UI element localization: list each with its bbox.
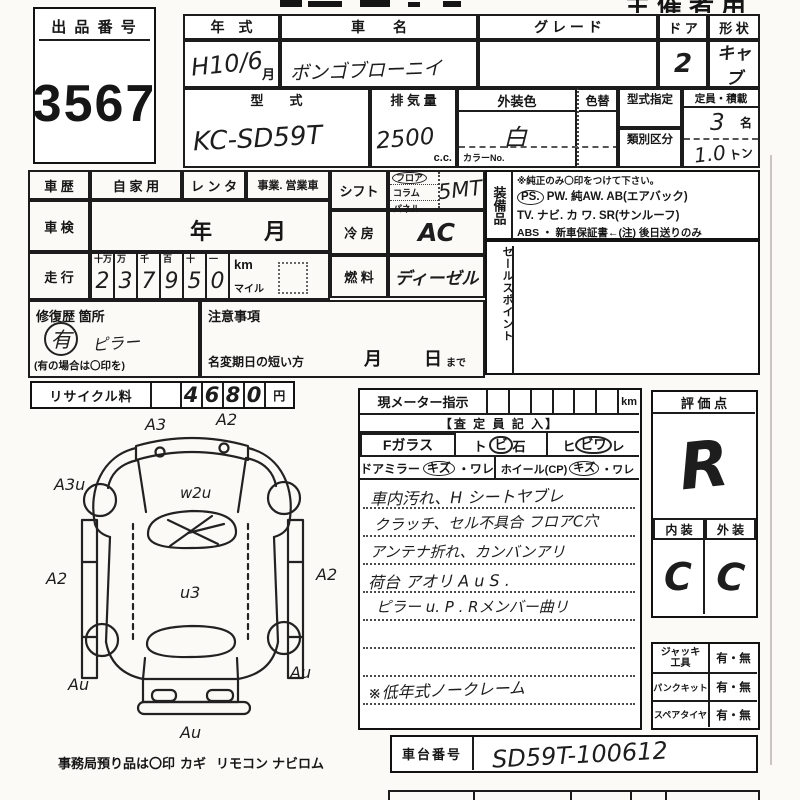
- meter-cell: [595, 390, 617, 413]
- mileage-digit-col: 万3: [115, 254, 138, 298]
- capacity-unit: 名: [740, 114, 752, 131]
- year-value: H10/6: [190, 46, 264, 81]
- cutoff-title-marks: [280, 0, 660, 9]
- footer-deposit-note: 事務局預り品は〇印: [58, 753, 175, 772]
- color-no-label: カラーNo.: [463, 151, 505, 164]
- carname-value: ボンゴブローニイ: [290, 53, 443, 85]
- shift-options: フロア コラム パネル: [390, 172, 440, 208]
- diagram-label-au-right: Au: [289, 663, 311, 682]
- capacity-value: 3: [710, 110, 725, 136]
- note-rule: [363, 535, 635, 537]
- evaluation-grade: R: [648, 409, 760, 523]
- model-label: 型 式: [185, 90, 368, 108]
- wheel-ware: ・ワレ: [601, 461, 634, 477]
- diagram-label-a2-left: A2: [45, 569, 67, 588]
- shaken-year: 年: [190, 214, 212, 246]
- crack-post: レ: [612, 436, 625, 455]
- caution-label: 注意事項: [208, 306, 260, 325]
- fglass-label: Fガラス: [360, 433, 456, 457]
- shift-cell: フロア コラム パネル 5MT: [388, 170, 485, 210]
- shift-floor-circled: フロア: [392, 172, 427, 184]
- shaken-month: 月: [264, 214, 286, 246]
- mark: [443, 1, 461, 7]
- divider: [630, 792, 632, 800]
- spare-tire-value: 有・無: [710, 702, 757, 727]
- mileage-digit-col: 十5: [184, 254, 207, 298]
- digit-head: 百: [161, 254, 182, 264]
- ps-circled: PS.: [517, 190, 544, 205]
- lot-number-value: 3567: [35, 45, 154, 162]
- history-rental: レ ン タ: [182, 170, 246, 200]
- stone-circled: ビ: [489, 436, 512, 455]
- crack-circled: ビワ: [575, 436, 611, 455]
- mile-label: マイル: [234, 280, 278, 295]
- note-rule: [363, 619, 635, 621]
- assessor-box: 現メーター指示 km 【査 定 員 記 入】 Fガラス トビ石 ヒビワレ ドアミ…: [358, 388, 642, 730]
- stone-post: 石: [513, 436, 529, 455]
- year-header: 年 式: [183, 14, 280, 40]
- stone-pre: ト: [473, 436, 489, 455]
- door-cell: 2: [658, 40, 708, 88]
- note-line: クラッチ、セル不具合 フロアC穴: [374, 510, 599, 535]
- irogae-cell: 色替: [577, 88, 618, 168]
- note-line: 車内汚れ、H シートヤブレ: [370, 482, 564, 509]
- equipment-line2: TV. ナビ. カ ワ. SR(サンルーフ): [517, 207, 756, 223]
- equipment-line1-rest: PW. 純AW. AB(エアバック): [547, 191, 688, 203]
- mirror-ware: ・ワレ: [458, 460, 494, 477]
- note-rule: [363, 703, 635, 705]
- recycle-unit: 円: [264, 383, 294, 407]
- caution-box: 注意事項 名変期日の短い方 月 日 まで: [200, 300, 485, 378]
- lot-number-box: 出 品 番 号 3567: [33, 7, 156, 164]
- recycle-blank-cell: [150, 383, 180, 407]
- puncture-kit-value: 有・無: [710, 674, 757, 702]
- mark: [308, 1, 342, 7]
- digit-value: 0: [207, 264, 228, 298]
- note-line: 荷台 アオリ A u S .: [368, 567, 510, 593]
- wheel-item: ホイール(CP) キズ・ワレ: [494, 457, 639, 480]
- note-rule: [363, 647, 635, 649]
- shape-header: 形 状: [708, 14, 760, 40]
- equipment-content: ※純正のみ〇印をつけて下さい。 PS. PW. 純AW. AB(エアバック) T…: [517, 173, 756, 238]
- class-division-label: 類別区分: [620, 130, 680, 148]
- vehicle-diagram: A3 A2 A3u A2 A2 w2u u3 Au Au Au: [40, 412, 360, 747]
- mileage-digit-col: 一0: [207, 254, 230, 298]
- displacement-value: 2500: [375, 123, 436, 154]
- displacement-label: 排 気 量: [372, 90, 455, 108]
- repair-label: 修復歴 箇所: [36, 306, 105, 325]
- diagram-label-a2-right: A2: [315, 565, 337, 584]
- recycle-digit: 0: [243, 383, 264, 407]
- auction-sheet: 主催者用 出 品 番 号 3567 年 式 車 名 グ レ ー ド ド ア 形 …: [0, 0, 800, 800]
- mark: [408, 2, 420, 7]
- recycle-label: リサイクル料: [32, 383, 150, 407]
- mark: [280, 0, 302, 7]
- mark: [360, 0, 390, 7]
- footer-navirom: ナビロム: [272, 753, 324, 772]
- capacity-cell: 定員・積載 3 名 1.0 トン: [682, 88, 760, 168]
- note-line: ※低年式ノークレーム: [368, 674, 526, 703]
- shape-cell: キャブ: [708, 40, 760, 88]
- puncture-kit-label: パンクキット: [653, 674, 710, 702]
- color-label: 外装色: [459, 90, 575, 112]
- rename-label: 名変期日の短い方: [208, 353, 304, 370]
- door-mirror-item: ドアミラー キズ・ワレ: [360, 457, 494, 480]
- bottom-partial-table: [388, 790, 760, 800]
- jack-tools-value: 有・無: [710, 644, 757, 674]
- evaluation-box: 評 価 点 R 内 装 外 装 C C: [651, 390, 758, 618]
- jack-tools-label: ジャッキ 工具: [653, 644, 710, 674]
- digit-head: 十: [184, 254, 205, 264]
- divider: [665, 792, 667, 800]
- footer-remote: リモコン: [216, 753, 268, 772]
- class-division-cell: 類別区分: [618, 128, 682, 168]
- diagram-label-a3: A3: [144, 415, 166, 434]
- grade-cell: [478, 40, 658, 88]
- chassis-value: SD59T-100612: [491, 736, 668, 773]
- mileage-digit-col: 十万2: [92, 254, 115, 298]
- chassis-label: 車台番号: [392, 737, 474, 770]
- equipment-vertical-label: 装備品: [487, 172, 513, 238]
- load-value: 1.0: [693, 140, 727, 167]
- mileage-units: km マイル: [230, 254, 278, 298]
- chassis-box: 車台番号 SD59T-100612: [390, 735, 758, 773]
- meter-cell: [530, 390, 552, 413]
- diagram-label-au-left: Au: [67, 675, 89, 694]
- mileage-digit-col: 百9: [161, 254, 184, 298]
- meter-label: 現メーター指示: [360, 390, 486, 413]
- wheel-kizu-circled: キズ: [569, 461, 599, 476]
- exterior-label: 外 装: [705, 518, 756, 540]
- exterior-grade: C: [701, 538, 759, 617]
- rename-month: 月: [364, 345, 382, 371]
- sales-point-vertical-label: セールスポイント: [490, 246, 514, 374]
- displacement-unit: c.c.: [434, 152, 452, 164]
- rename-day: 日: [424, 345, 442, 371]
- mileage-digit-col: 千7: [138, 254, 161, 298]
- mileage-label: 走 行: [28, 252, 90, 300]
- assessor-header: 【査 定 員 記 入】: [360, 415, 639, 433]
- interior-label: 内 装: [653, 518, 705, 540]
- displacement-cell: 排 気 量 2500 c.c.: [370, 88, 457, 168]
- mirror-wheel-row: ドアミラー キズ・ワレ ホイール(CP) キズ・ワレ: [360, 457, 639, 480]
- fglass-row: Fガラス トビ石 ヒビワレ: [360, 433, 639, 457]
- meter-cell: [573, 390, 595, 413]
- spare-tire-label: スペアタイヤ: [653, 702, 710, 727]
- diagram-label-u3: u3: [180, 583, 200, 602]
- diagram-label-a2-top: A2: [215, 412, 237, 429]
- corner-use-label: 主催者用: [625, 0, 785, 13]
- truck-top-view: A3 A2 A3u A2 A2 w2u u3 Au Au Au: [40, 412, 360, 747]
- shift-value: 5MT: [437, 176, 484, 205]
- meter-unit: km: [617, 390, 639, 413]
- digit-head: 一: [207, 254, 228, 264]
- mile-checkbox: [278, 262, 308, 294]
- ac-value: AC: [388, 210, 485, 255]
- irogae-label: 色替: [579, 90, 616, 112]
- meter-cell: [486, 390, 508, 413]
- digit-value: 7: [138, 264, 159, 298]
- shift-column-option: コラム: [390, 185, 438, 201]
- equipment-line1: PS. PW. 純AW. AB(エアバック): [517, 188, 756, 205]
- corner-use-text: 主催者用: [625, 0, 753, 13]
- shaken-label: 車 検: [28, 200, 90, 252]
- digit-value: 3: [115, 264, 136, 298]
- km-label: km: [234, 258, 278, 272]
- equipment-line3: ABS ・ 新車保証書←(注) 後日送りのみ: [517, 225, 756, 240]
- divider: [570, 792, 572, 800]
- door-header: ド ア: [658, 14, 708, 40]
- type-designation-cell: 型式指定: [618, 88, 682, 128]
- year-cell: H10/6 月: [183, 40, 280, 88]
- crack-pre: ヒ: [562, 436, 575, 455]
- digit-value: 2: [92, 264, 113, 298]
- fuel-label: 燃 料: [330, 255, 388, 298]
- fuel-value: ディーゼル: [388, 255, 485, 298]
- footer-key: カギ: [180, 753, 206, 772]
- recycle-box: リサイクル料 4 6 8 0 円: [30, 381, 295, 409]
- meter-cell: [552, 390, 574, 413]
- rename-suffix: まで: [446, 354, 466, 369]
- equipment-note: ※純正のみ〇印をつけて下さい。: [517, 173, 756, 187]
- type-designation-label: 型式指定: [620, 90, 680, 108]
- ac-label: 冷 房: [330, 210, 388, 255]
- tools-box: ジャッキ 工具 有・無 パンクキット 有・無 スペアタイヤ 有・無: [651, 642, 760, 730]
- digit-value: 5: [184, 264, 205, 298]
- interior-grade: C: [653, 540, 705, 614]
- load-unit: トン: [728, 143, 754, 163]
- meter-row: 現メーター指示 km: [360, 390, 639, 415]
- repair-text: ピラー: [91, 328, 141, 355]
- diagram-label-au-bottom: Au: [179, 723, 201, 742]
- recycle-digit: 4: [180, 383, 201, 407]
- meter-cell: [508, 390, 530, 413]
- diagram-label-w2u: w2u: [180, 484, 211, 502]
- door-mirror-label: ドアミラー: [360, 460, 420, 477]
- note-line: ピラー u. P . Rメンバー曲リ: [376, 596, 569, 617]
- mileage-cell: 十万2 万3 千7 百9 十5 一0 km マイル: [90, 252, 330, 300]
- stone-chip-item: トビ石: [456, 433, 546, 457]
- equipment-box: 装備品 ※純正のみ〇印をつけて下さい。 PS. PW. 純AW. AB(エアバッ…: [485, 170, 760, 240]
- digit-head: 十万: [92, 254, 113, 264]
- digit-head: 千: [138, 254, 159, 264]
- year-unit: 月: [262, 64, 275, 83]
- divider: [473, 792, 475, 800]
- sales-point-box: セールスポイント: [485, 240, 760, 375]
- model-value: KC-SD59T: [192, 121, 323, 158]
- lot-number-label: 出 品 番 号: [39, 13, 150, 41]
- recycle-digit: 8: [222, 383, 243, 407]
- grade-header: グ レ ー ド: [478, 14, 658, 40]
- capacity-label: 定員・積載: [684, 90, 758, 108]
- shift-label: シフト: [330, 170, 388, 210]
- carname-header: 車 名: [280, 14, 478, 40]
- mirror-kizu-circled: キズ: [423, 461, 455, 477]
- crack-item: ヒビワレ: [546, 433, 639, 457]
- repair-hint: (有の場合は〇印を): [34, 358, 125, 373]
- digit-value: 9: [161, 264, 182, 298]
- note-rule: [363, 563, 635, 565]
- recycle-digit: 6: [201, 383, 222, 407]
- carname-cell: ボンゴブローニイ: [280, 40, 478, 88]
- page-edge-line: [770, 155, 772, 765]
- wheel-label: ホイール(CP): [501, 461, 568, 477]
- shaken-cell: 年 月: [90, 200, 330, 252]
- color-cell: 外装色 白 カラーNo.: [457, 88, 577, 168]
- repair-mark-circled: 有: [44, 322, 78, 356]
- notes-area: 車内汚れ、H シートヤブレ クラッチ、セル不具合 フロアC穴 アンテナ折れ、カン…: [360, 480, 639, 728]
- note-line: アンテナ折れ、カンバンアリ: [370, 541, 565, 562]
- model-cell: 型 式 KC-SD59T: [183, 88, 370, 168]
- repair-box: 修復歴 箇所 有 ピラー (有の場合は〇印を): [28, 300, 200, 378]
- history-private: 自 家 用: [90, 170, 182, 200]
- history-business: 事業. 営業車: [246, 170, 330, 200]
- diagram-label-a3u: A3u: [53, 475, 85, 494]
- digit-head: 万: [115, 254, 136, 264]
- history-label: 車 歴: [28, 170, 90, 200]
